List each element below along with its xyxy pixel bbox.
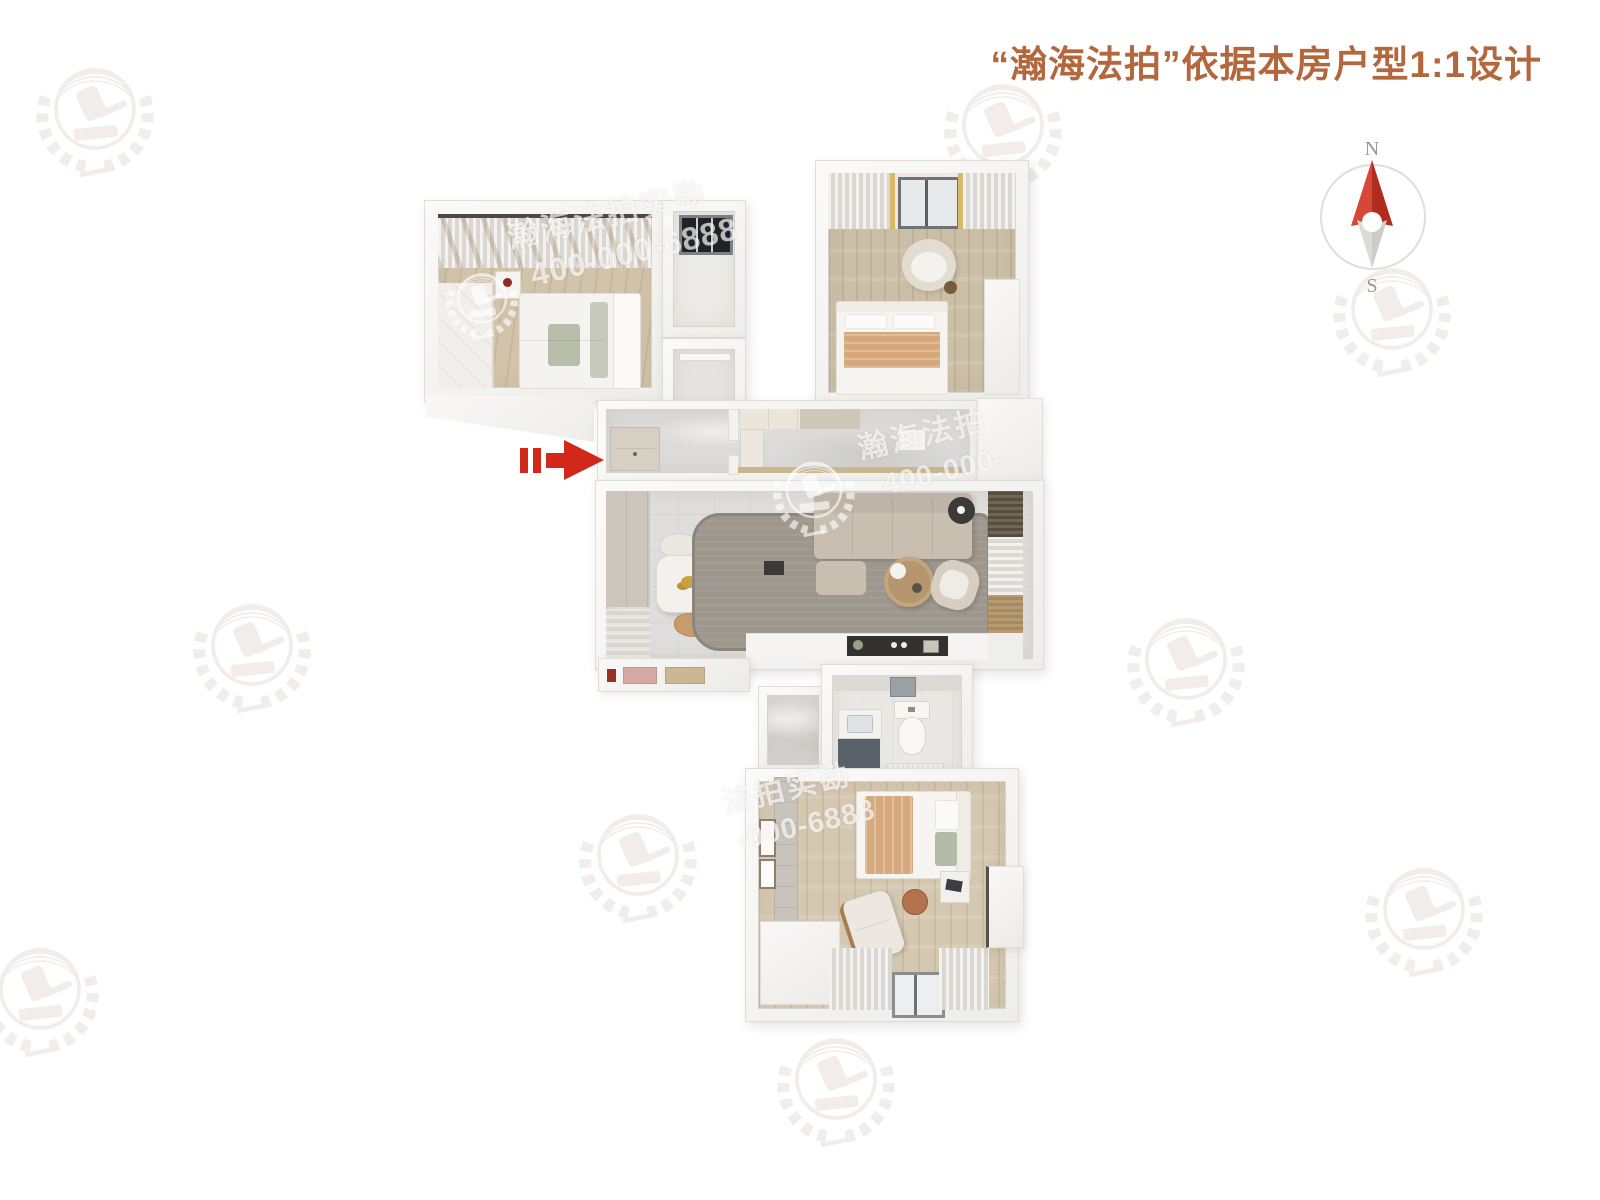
window — [898, 177, 960, 229]
compass: N S — [1316, 138, 1428, 298]
watermark-logo-icon — [762, 440, 866, 544]
tv-console — [847, 636, 948, 656]
curtain-left — [829, 948, 892, 1010]
watermark-logo-icon — [563, 783, 713, 933]
bed-pillow — [893, 314, 935, 329]
curtain-right — [963, 173, 1016, 229]
entry-arrow-icon — [518, 438, 606, 482]
console-plant — [853, 640, 863, 650]
console-frame — [923, 640, 939, 653]
toilet-bowl — [898, 717, 926, 755]
bay-block — [760, 921, 840, 1005]
armchair-seat — [911, 252, 947, 282]
curtain-left — [828, 173, 890, 229]
curtain-trim — [890, 173, 895, 229]
flush-button — [908, 707, 915, 712]
wall-diagonal — [426, 396, 594, 442]
room-bedroom-northeast — [815, 160, 1029, 406]
watermark-bottom: 法拍实勘 -000-6888 — [726, 778, 946, 878]
book-red — [607, 669, 616, 682]
window — [892, 972, 945, 1018]
bedroom-ne-window-wall — [828, 173, 1016, 229]
side-table-copper — [902, 889, 928, 915]
plant-pot — [944, 281, 957, 294]
watermark-top: 瀚海法拍实勘 400-000-6888 — [436, 206, 756, 356]
tan-blanket — [844, 332, 940, 368]
console-decor — [901, 642, 907, 648]
sofa-chaise — [816, 561, 866, 595]
corridor-south-floor — [767, 695, 819, 765]
watermark-logo-icon — [1349, 837, 1499, 987]
radiator — [606, 609, 650, 659]
watermark-center: 瀚海法拍 400-000- — [758, 414, 1058, 554]
toilet — [894, 701, 928, 757]
watermark-logo-icon — [761, 1007, 911, 1157]
placemat-tan — [665, 667, 705, 684]
sideboard-desk — [598, 658, 750, 692]
bed-headboard — [837, 302, 947, 312]
compass-needle-icon — [1343, 156, 1401, 274]
shower-head — [890, 677, 916, 697]
placemat-pink — [623, 667, 657, 684]
coffee-table — [884, 557, 934, 607]
coffee-item — [912, 583, 922, 593]
window-mullion — [925, 180, 928, 226]
vanity-counter — [838, 709, 882, 739]
wall-jut-southeast — [986, 866, 1024, 948]
page-title: “瀚海法拍”依据本房户型1:1设计 — [991, 34, 1542, 88]
curtain-right — [939, 948, 989, 1010]
window-mullion — [914, 975, 917, 1015]
decor-tray — [764, 561, 784, 575]
closet-block — [984, 279, 1020, 395]
coffee-tray — [890, 563, 906, 579]
bed — [836, 301, 948, 395]
drawer-knob — [633, 452, 637, 456]
watermark-logo-icon — [177, 573, 327, 723]
compass-south-label: S — [1316, 275, 1428, 298]
hall-divider-wall — [728, 409, 739, 441]
shoe-cabinet — [610, 427, 660, 471]
watermark-logo-icon — [0, 917, 115, 1067]
laptop — [945, 879, 963, 893]
watermark-logo-icon — [20, 37, 170, 187]
sink — [847, 715, 873, 733]
armchair-seat — [936, 567, 971, 602]
floorplan-page: “瀚海法拍”依据本房户型1:1设计 N S — [0, 0, 1600, 1200]
console-decor — [891, 642, 897, 648]
balcony-blinds-tan — [988, 595, 1023, 633]
bed-pillow — [845, 314, 887, 329]
watermark-logo-icon — [1111, 587, 1261, 737]
entry-wardrobe — [606, 491, 650, 607]
